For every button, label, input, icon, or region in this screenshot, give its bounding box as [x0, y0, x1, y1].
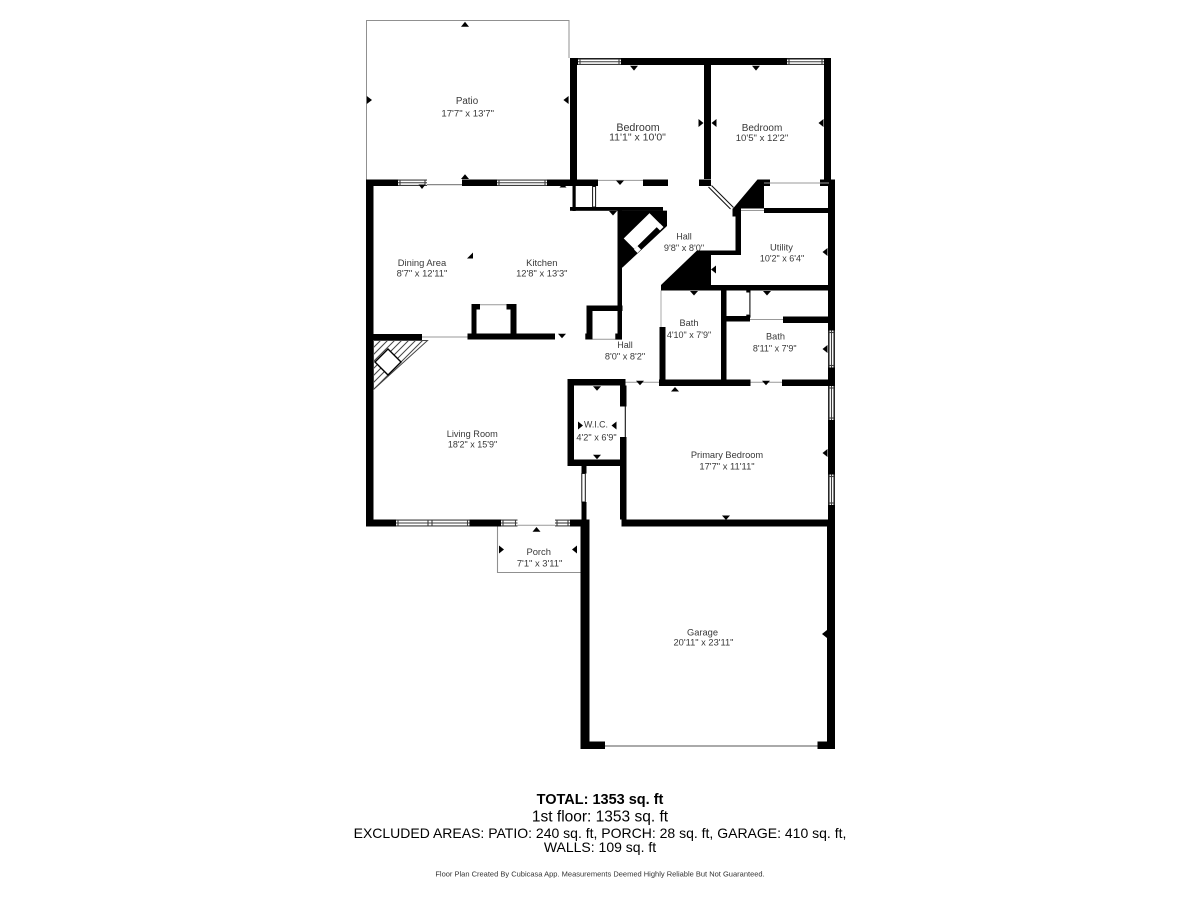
svg-text:11'1" x 10'0": 11'1" x 10'0" — [609, 132, 666, 144]
svg-text:Floor Plan Created By Cubicasa: Floor Plan Created By Cubicasa App. Meas… — [435, 870, 764, 879]
svg-text:8'7" x 12'11": 8'7" x 12'11" — [397, 268, 448, 279]
svg-text:W.I.C.: W.I.C. — [584, 420, 608, 430]
svg-text:TOTAL: 1353 sq. ft: TOTAL: 1353 sq. ft — [537, 792, 664, 808]
svg-text:Bath: Bath — [766, 332, 785, 342]
svg-text:7'1" x 3'11": 7'1" x 3'11" — [517, 558, 563, 569]
svg-text:20'11" x 23'11": 20'11" x 23'11" — [674, 637, 734, 647]
svg-text:Porch: Porch — [526, 546, 551, 557]
svg-text:4'2" x 6'9": 4'2" x 6'9" — [576, 432, 616, 442]
svg-text:Kitchen: Kitchen — [526, 257, 557, 268]
svg-text:8'11" x 7'9": 8'11" x 7'9" — [753, 344, 797, 354]
svg-text:18'2" x 15'9": 18'2" x 15'9" — [448, 440, 497, 450]
svg-text:8'0" x 8'2": 8'0" x 8'2" — [605, 352, 645, 362]
svg-text:12'8" x 13'3": 12'8" x 13'3" — [516, 268, 567, 279]
svg-text:WALLS: 109 sq. ft: WALLS: 109 sq. ft — [544, 839, 656, 855]
svg-text:Living Room: Living Room — [447, 429, 498, 439]
svg-text:17'7" x 13'7": 17'7" x 13'7" — [441, 109, 494, 120]
svg-text:9'8" x 8'0": 9'8" x 8'0" — [664, 243, 704, 253]
svg-text:Primary Bedroom: Primary Bedroom — [691, 450, 764, 460]
svg-text:Bath: Bath — [680, 318, 699, 328]
svg-text:Dining Area: Dining Area — [398, 257, 447, 268]
svg-text:1st floor: 1353 sq. ft: 1st floor: 1353 sq. ft — [532, 809, 669, 826]
svg-text:4'10" x 7'9": 4'10" x 7'9" — [667, 330, 711, 340]
svg-text:Utility: Utility — [770, 242, 793, 253]
svg-text:Garage: Garage — [687, 628, 718, 638]
svg-text:Hall: Hall — [676, 231, 692, 241]
svg-text:17'7" x 11'11": 17'7" x 11'11" — [699, 460, 754, 471]
svg-text:Hall: Hall — [617, 340, 633, 350]
svg-text:10'5" x 12'2": 10'5" x 12'2" — [736, 133, 789, 144]
svg-text:Patio: Patio — [456, 96, 479, 107]
svg-text:10'2" x 6'4": 10'2" x 6'4" — [760, 253, 804, 263]
